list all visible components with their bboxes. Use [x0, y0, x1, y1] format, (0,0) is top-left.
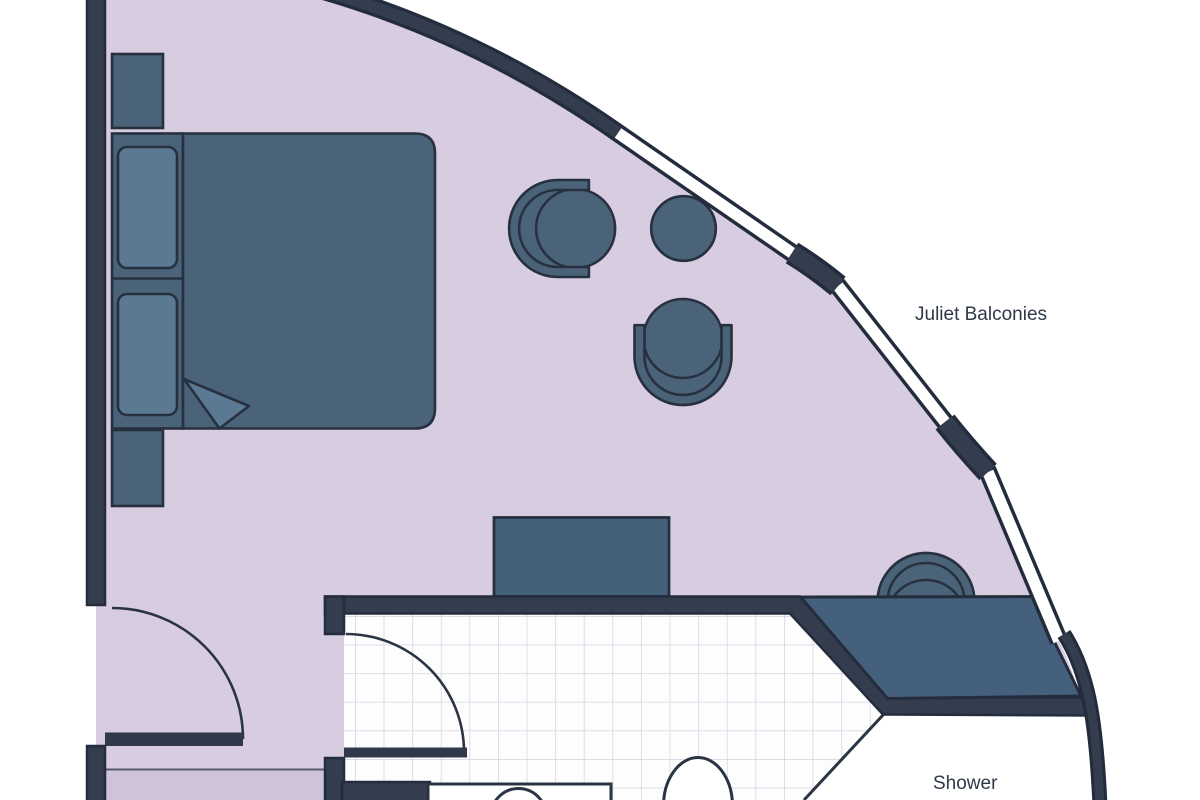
svg-text:Shower: Shower [933, 773, 998, 794]
svg-text:Juliet Balconies: Juliet Balconies [915, 304, 1047, 325]
